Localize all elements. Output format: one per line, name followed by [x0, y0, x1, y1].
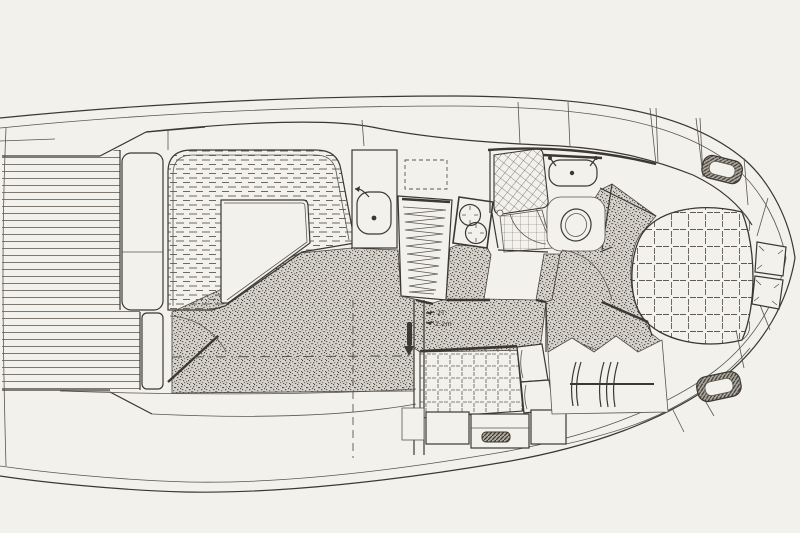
scanned-deck-plan-page: 2T 2.2m [0, 0, 800, 533]
overhead-hatch-dashed [405, 160, 447, 189]
forward-cabin-pillows [752, 242, 786, 309]
head-toilet [547, 197, 605, 251]
forward-cabin-bed [632, 208, 753, 344]
dimension-note-line2: 2.2m [435, 320, 452, 328]
head-sink [543, 155, 602, 186]
galley-sink [357, 192, 391, 234]
cabinet-vent [482, 432, 510, 442]
galley-sink-unit [352, 150, 397, 248]
dimension-note-line1: 2T [437, 309, 445, 317]
deck-hatch-forward-top [700, 154, 744, 186]
galley-counter [398, 196, 452, 300]
guest-berth [420, 346, 523, 418]
guest-cabinets [402, 408, 566, 448]
head-tile-floor [500, 210, 552, 252]
galley-stove [453, 197, 493, 248]
hanging-locker [548, 336, 668, 414]
boat-floorplan: 2T 2.2m [0, 0, 800, 533]
deck-hatch-forward-bottom [695, 370, 743, 404]
